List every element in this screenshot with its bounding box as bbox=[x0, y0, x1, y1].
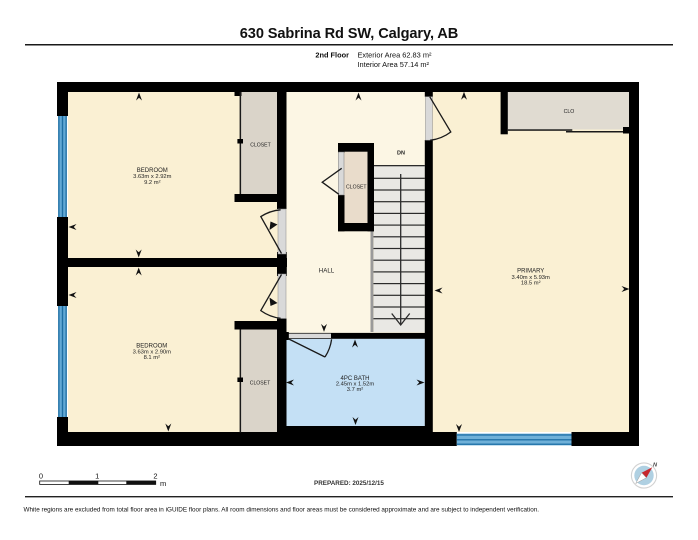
svg-text:630 Sabrina Rd SW, Calgary, AB: 630 Sabrina Rd SW, Calgary, AB bbox=[240, 26, 458, 42]
svg-text:HALL: HALL bbox=[319, 267, 335, 274]
svg-text:18.5 m²: 18.5 m² bbox=[521, 280, 541, 286]
svg-text:1: 1 bbox=[95, 472, 99, 481]
svg-text:CLO: CLO bbox=[564, 109, 575, 115]
svg-text:CLOSET: CLOSET bbox=[250, 142, 271, 148]
svg-text:PREPARED: 2025/12/15: PREPARED: 2025/12/15 bbox=[314, 480, 384, 487]
svg-text:0: 0 bbox=[39, 472, 43, 481]
svg-text:Exterior Area 62.83 m²: Exterior Area 62.83 m² bbox=[358, 51, 432, 60]
svg-text:DN: DN bbox=[397, 151, 405, 157]
svg-text:2nd Floor: 2nd Floor bbox=[315, 51, 349, 60]
svg-text:Interior Area 57.14 m²: Interior Area 57.14 m² bbox=[358, 60, 430, 69]
svg-text:9.2 m²: 9.2 m² bbox=[144, 180, 160, 186]
svg-text:CLOSET: CLOSET bbox=[250, 380, 271, 386]
svg-text:2: 2 bbox=[153, 472, 157, 481]
svg-text:White regions are excluded fro: White regions are excluded from total fl… bbox=[24, 507, 540, 514]
svg-text:PRIMARY: PRIMARY bbox=[517, 268, 544, 274]
svg-text:m: m bbox=[160, 479, 166, 488]
svg-text:8.1 m²: 8.1 m² bbox=[144, 355, 160, 361]
svg-text:CLOSET: CLOSET bbox=[346, 185, 367, 191]
svg-text:3.7 m²: 3.7 m² bbox=[347, 387, 363, 393]
